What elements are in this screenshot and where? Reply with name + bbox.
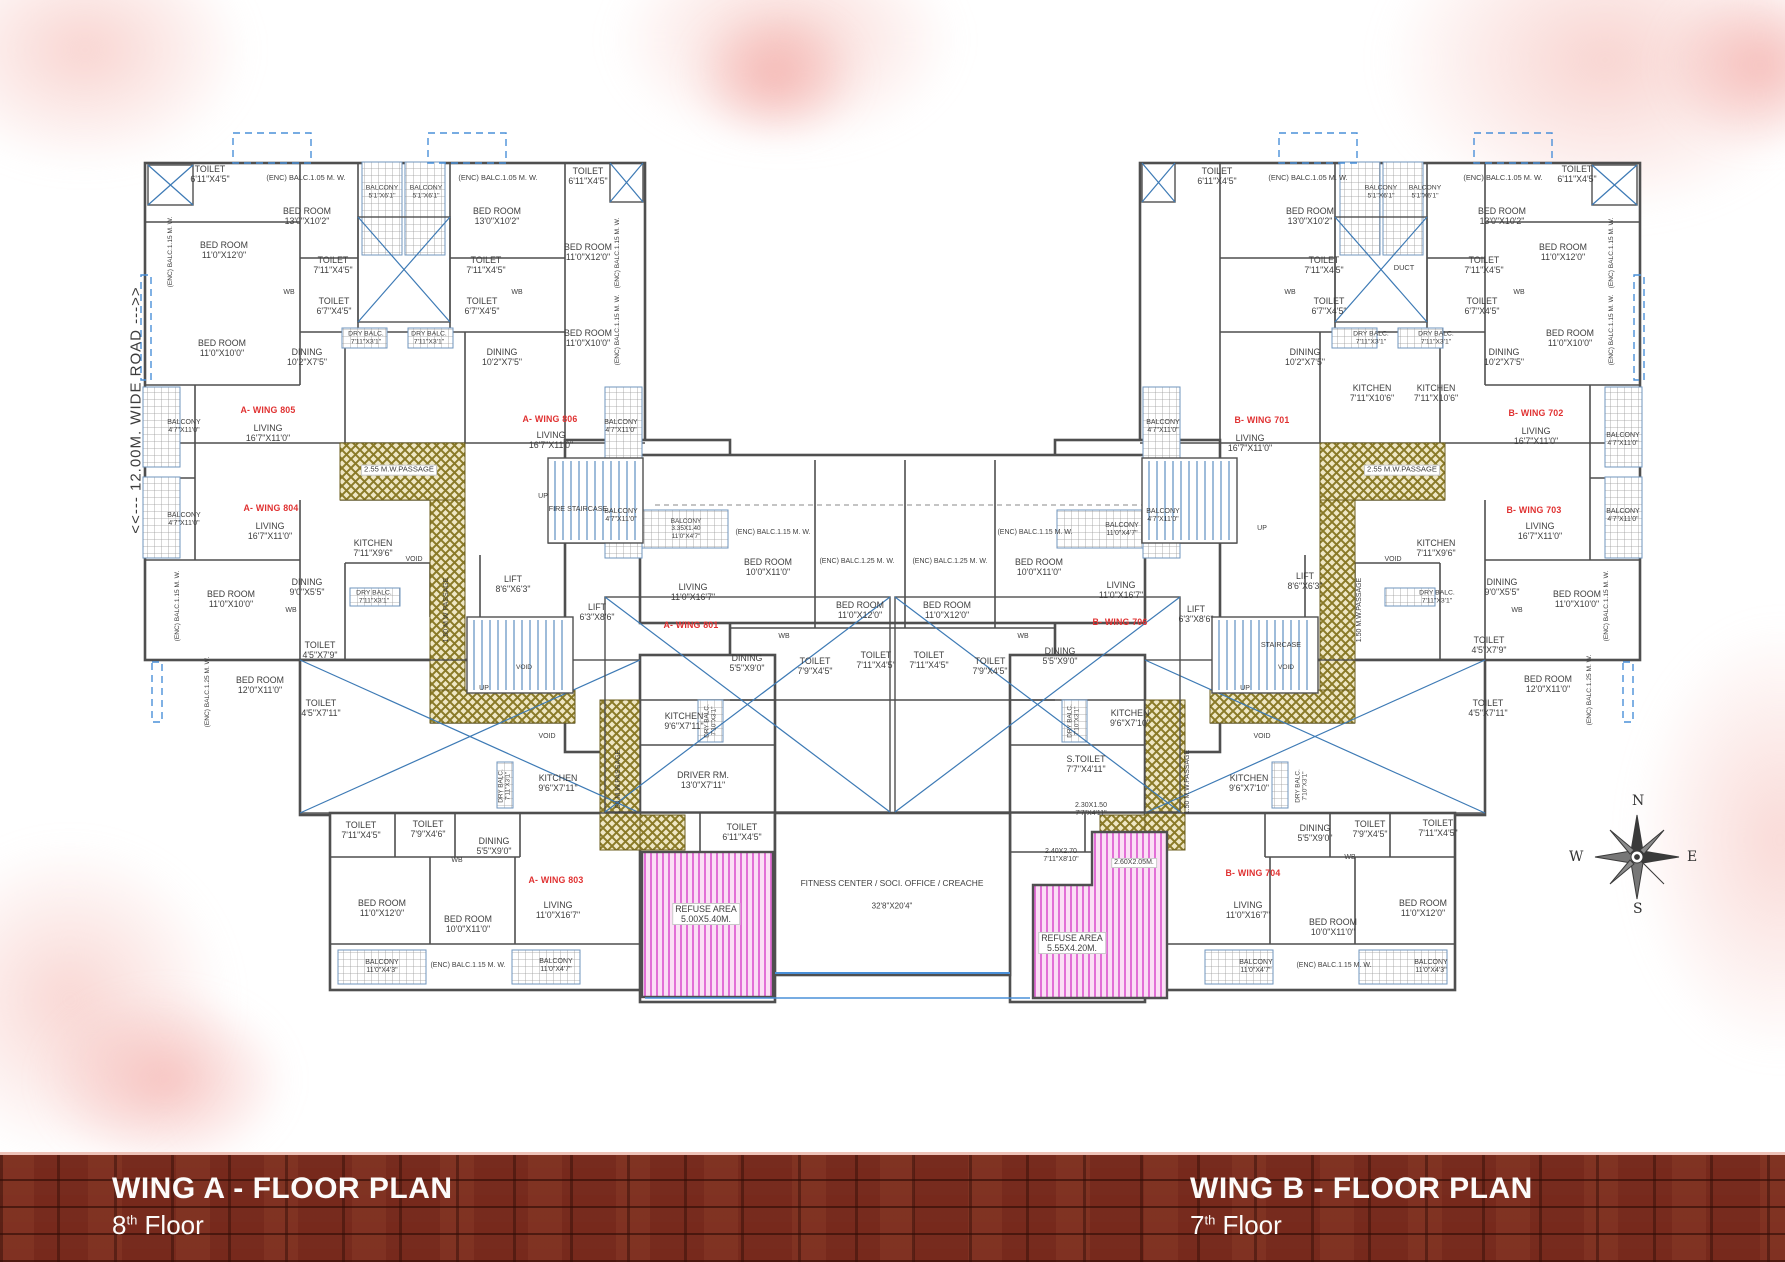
room-label: DINING 10'2"X7'5" (287, 347, 327, 367)
room-label: DRY BALC. 7'11"X3'1" (1353, 330, 1389, 345)
room-label: DRY BALC. 7'10"X3'1" (1295, 769, 1310, 803)
room-label: DRY BALC. 7'11"X3'1" (498, 769, 513, 803)
compass-west-label: W (1569, 849, 1583, 865)
room-label: TOILET 4'5"X7'9" (1471, 635, 1506, 655)
room-label: KITCHEN 7'11"X10'6" (1350, 383, 1394, 403)
room-label: BED ROOM 13'0"X10'2" (473, 206, 521, 226)
room-label: TOILET 6'11"X4'5" (722, 822, 761, 842)
room-label: TOILET 4'5"X7'9" (302, 640, 337, 660)
room-label: BED ROOM 11'0"X10'0" (198, 338, 246, 358)
compass-rose: N S W E (1577, 797, 1697, 917)
room-label: (ENC) BALC.1.25 M. W. (819, 558, 894, 566)
room-label: LIVING 16'7"X11'0" (1514, 426, 1558, 446)
footer-band: WING A - FLOOR PLAN 8th Floor WING B - F… (0, 1152, 1785, 1262)
room-label: (ENC) BALC.1.15 M. W. (1296, 962, 1371, 970)
room-label: (ENC) BALC.1.25 M. W. (204, 657, 212, 728)
room-label: LIVING 16'7"X11'0" (529, 430, 573, 450)
compass-north-label: N (1632, 793, 1644, 809)
room-label: 1.50 M.W PASSAGE (443, 578, 451, 643)
wing-a-floor-suffix: th (126, 1212, 137, 1227)
room-label: BALCONY 11'0"X4'3" (365, 959, 398, 975)
room-label: BALCONY 4'7"X11'0" (1606, 432, 1639, 448)
wing-a-floor-number: 8 (112, 1210, 126, 1240)
unit-label: A- WING 806 (523, 414, 578, 424)
room-label: BED ROOM 11'0"X10'0" (1546, 328, 1594, 348)
room-label: TOILET 7'9"X4'5" (797, 656, 832, 676)
room-label: TOILET 6'11"X4'5" (1197, 166, 1236, 186)
room-label: REFUSE AREA 5.00X5.40M. (672, 903, 740, 925)
room-label: 1.50 M.W.PASSAGE (615, 750, 623, 814)
room-label: BALCONY 4'7"X11'0" (167, 419, 200, 435)
room-label: DINING 5'5"X9'0" (1297, 823, 1332, 843)
room-label: BALCONY 11'0"X4'3" (1414, 959, 1447, 975)
compass-south-label: S (1633, 901, 1643, 917)
room-label: 1.50 M.W.PASSAGE (1184, 750, 1192, 814)
room-label: LIFT 6'3"X8'6" (579, 602, 614, 622)
room-label: DRY BALC. 7'11"X3'1" (411, 330, 447, 345)
room-label: (ENC) BALC.1.15 M. W. (167, 217, 175, 288)
wing-a-title: WING A - FLOOR PLAN (112, 1172, 453, 1206)
wing-b-title-block: WING B - FLOOR PLAN 7th Floor (1190, 1172, 1533, 1241)
room-label: UP (479, 685, 489, 693)
room-label: BED ROOM 11'0"X12'0" (836, 600, 884, 620)
room-label: WB (1284, 289, 1295, 297)
room-label: LIVING 16'7"X11'0" (246, 423, 290, 443)
room-label: 2.55 M.W.PASSAGE (1364, 465, 1440, 476)
room-label: BALCONY 11'0"X4'7" (539, 958, 572, 974)
room-label: TOILET 6'7"X4'5" (464, 296, 499, 316)
room-label: DRIVER RM. 13'0"X7'11" (677, 770, 729, 790)
room-label: TOILET 6'7"X4'5" (1464, 296, 1499, 316)
room-label: TOILET 7'11"X4'5" (341, 820, 380, 840)
room-label: (ENC) BALC.1.15 M. W. (735, 529, 810, 537)
room-label: BALCONY 4'7"X11'0" (1146, 508, 1179, 524)
room-label: TOILET 7'11"X4'5" (909, 650, 948, 670)
room-label: TOILET 4'5"X7'11" (301, 698, 340, 718)
room-label: BED ROOM 11'0"X12'0" (1539, 242, 1587, 262)
room-label: BALCONY 3.35X1.40 11'0"X4'7" (671, 518, 702, 540)
room-label: (ENC) BALC.1.15 M. W. (1608, 218, 1616, 289)
room-label: BED ROOM 13'0"X10'2" (1478, 206, 1526, 226)
room-label: LIFT 8'6"X6'3" (495, 574, 530, 594)
room-label: BALCONY 4'7"X11'0" (1606, 508, 1639, 524)
room-label: TOILET 7'11"X4'5" (1464, 255, 1503, 275)
room-label: KITCHEN 9'6"X7'11" (664, 711, 703, 731)
room-label: DINING 9'0"X5'5" (289, 577, 324, 597)
room-label: BALCONY 5'1"X6'1" (1409, 184, 1441, 199)
room-label: 2.40X2.70 7'11"X8'10" (1043, 848, 1078, 864)
room-label: (ENC) BALC.1.25 M. W. (912, 558, 987, 566)
room-label: (ENC) BALC.1.15 M. W. (1603, 571, 1611, 642)
room-label: LIVING 11'0"X16'7" (671, 582, 715, 602)
room-label: KITCHEN 9'6"X7'10" (1229, 773, 1269, 793)
room-label: WB (511, 289, 522, 297)
room-label: (ENC) BALC.1.25 M. W. (1586, 655, 1594, 726)
room-label: BED ROOM 12'0"X11'0" (236, 675, 284, 695)
room-label: LIVING 11'0"X16'7" (536, 900, 580, 920)
room-label: TOILET 7'9"X4'5" (972, 656, 1007, 676)
room-label: VOID (405, 556, 422, 564)
wing-a-floor-word: Floor (145, 1210, 204, 1240)
floor-plan-svg (0, 0, 1785, 1262)
room-label: BALCONY 4'7"X11'0" (604, 508, 637, 524)
room-label: TOILET 7'11"X4'5" (1418, 818, 1457, 838)
room-label: BALCONY 4'7"X11'0" (167, 512, 200, 528)
room-label: VOID (516, 664, 532, 672)
room-label: TOILET 4'5"X7'11" (1468, 698, 1507, 718)
wing-b-floor-word: Floor (1223, 1210, 1282, 1240)
room-label: DINING 5'5"X9'0" (1042, 646, 1077, 666)
wing-b-floor-suffix: th (1204, 1212, 1215, 1227)
room-label: VOID (1278, 664, 1294, 672)
room-label: TOILET 6'11"X4'5" (190, 164, 229, 184)
compass-star-icon (1577, 797, 1697, 917)
room-label: DINING 10'2"X7'5" (482, 347, 522, 367)
room-label: LIVING 16'7"X11'0" (1228, 433, 1272, 453)
room-label: BED ROOM 10'0"X11'0" (1015, 557, 1063, 577)
room-label: 2.55 M.W.PASSAGE (361, 465, 437, 476)
room-label: 32'8"X20'4" (872, 901, 913, 910)
room-label: DINING 10'2"X7'5" (1484, 347, 1524, 367)
wing-b-floor: 7th Floor (1190, 1210, 1533, 1241)
room-label: BED ROOM 13'0"X10'2" (283, 206, 331, 226)
room-label: DRY BALC. 7'11"X3'1" (348, 330, 384, 345)
room-label: TOILET 7'9"X4'6" (410, 819, 445, 839)
room-label: BED ROOM 13'0"X10'2" (1286, 206, 1334, 226)
room-label: KITCHEN 9'6"X7'11" (538, 773, 577, 793)
room-label: WB (1511, 607, 1522, 615)
room-label: FIRE STAIRCASE (549, 505, 608, 513)
unit-label: B- WING 701 (1235, 415, 1290, 425)
room-label: LIVING 11'0"X16'7" (1099, 580, 1143, 600)
unit-label: A- WING 801 (664, 620, 719, 630)
room-label: BALCONY 4'7"X11'0" (604, 419, 637, 435)
unit-label: A- WING 805 (241, 405, 296, 415)
room-label: (ENC) BALC.1.05 M. W. (458, 174, 537, 182)
room-label: BED ROOM 11'0"X12'0" (923, 600, 971, 620)
room-label: KITCHEN 9'6"X7'10" (1110, 708, 1150, 728)
room-label: VOID (1253, 733, 1270, 741)
room-label: LIFT 8'6"X6'3" (1287, 571, 1322, 591)
room-label: BED ROOM 11'0"X12'0" (200, 240, 248, 260)
unit-label: B- WING 704 (1226, 868, 1281, 878)
room-label: S.TOILET 7'7"X4'11" (1066, 754, 1105, 774)
room-label: WB (451, 857, 462, 865)
road-label: <<--- 12.00M. WIDE ROAD --->> (128, 286, 145, 533)
room-label: DRY BALC. 7'10"X3'1" (704, 704, 719, 738)
room-label: TOILET 6'7"X4'5" (316, 296, 351, 316)
room-label: WB (283, 289, 294, 297)
room-label: UP (538, 493, 548, 501)
room-label: DINING 10'2"X7'5" (1285, 347, 1325, 367)
room-label: TOILET 7'11"X4'5" (1304, 255, 1343, 275)
room-label: (ENC) BALC.1.15 M. W. (174, 571, 182, 642)
room-label: (ENC) BALC.1.15 M. W. (614, 218, 622, 289)
room-label: BED ROOM 11'0"X10'0" (1553, 589, 1601, 609)
room-label: TOILET 7'9"X4'5" (1352, 819, 1387, 839)
room-label: LIVING 16'7"X11'0" (1518, 521, 1562, 541)
room-label: BED ROOM 11'0"X12'0" (564, 242, 612, 262)
room-label: (ENC) BALC.1.15 M. W. (997, 529, 1072, 537)
room-label: DINING 5'5"X9'0" (729, 653, 764, 673)
room-label: TOILET 6'11"X4'5" (568, 166, 607, 186)
room-label: BED ROOM 10'0"X11'0" (1309, 917, 1357, 937)
room-label: BED ROOM 11'0"X10'0" (564, 328, 612, 348)
wing-b-title: WING B - FLOOR PLAN (1190, 1172, 1533, 1206)
room-label: (ENC) BALC.1.05 M. W. (1463, 174, 1542, 182)
compass-east-label: E (1687, 849, 1697, 865)
room-label: UP (1240, 685, 1250, 693)
room-label: FITNESS CENTER / SOCI. OFFICE / CREACHE (801, 879, 984, 889)
room-label: BED ROOM 11'0"X12'0" (1399, 898, 1447, 918)
room-label: TOILET 6'11"X4'5" (1557, 164, 1596, 184)
room-label: 2.60X2.05M. (1111, 858, 1157, 868)
room-label: BED ROOM 10'0"X11'0" (444, 914, 492, 934)
room-label: (ENC) BALC.1.15 M. W. (1608, 295, 1616, 366)
room-label: WB (1344, 854, 1355, 862)
wing-b-floor-number: 7 (1190, 1210, 1204, 1240)
room-label: DINING 5'5"X9'0" (476, 836, 511, 856)
unit-label: A- WING 803 (529, 875, 584, 885)
room-label: TOILET 6'7"X4'5" (1311, 296, 1346, 316)
room-label: VOID (1384, 556, 1401, 564)
room-label: DUCT (1394, 264, 1415, 272)
room-label: BED ROOM 11'0"X10'0" (207, 589, 255, 609)
room-label: KITCHEN 7'11"X9'6" (353, 538, 392, 558)
room-label: BALCONY 11'0"X4'7" (1239, 959, 1272, 975)
room-label: WB (1017, 633, 1028, 641)
room-label: BALCONY 5'1"X6'1" (410, 184, 442, 199)
room-label: UP (1257, 525, 1267, 533)
room-label: BED ROOM 10'0"X11'0" (744, 557, 792, 577)
room-label: (ENC) BALC.1.05 M. W. (1268, 174, 1347, 182)
room-label: 1.50 M.W.PASSAGE (1356, 578, 1364, 642)
room-label: STAIRCASE (1261, 641, 1301, 649)
room-label: LIVING 16'7"X11'0" (248, 521, 292, 541)
floor-plan-page: TOILET 6'11"X4'5"(ENC) BALC.1.15 M. W.BE… (0, 0, 1785, 1262)
room-label: REFUSE AREA 5.55X4.20M. (1038, 932, 1106, 954)
room-label: BALCONY 4'7"X11'0" (1146, 419, 1179, 435)
unit-label: B- WING 706 (1093, 617, 1148, 627)
room-label: BED ROOM 12'0"X11'0" (1524, 674, 1572, 694)
room-label: DRY BALC. 7'10"X3'1" (1067, 704, 1082, 738)
room-label: (ENC) BALC.1.15 M. W. (430, 962, 505, 970)
room-label: KITCHEN 7'11"X10'6" (1414, 383, 1458, 403)
wing-a-floor: 8th Floor (112, 1210, 453, 1241)
room-label: BALCONY 5'1"X6'1" (1365, 184, 1397, 199)
room-label: LIVING 11'0"X16'7" (1226, 900, 1270, 920)
room-label: LIFT 6'3"X8'6" (1178, 604, 1213, 624)
room-label: WB (1513, 289, 1524, 297)
room-label: WB (778, 633, 789, 641)
room-label: DINING 9'0"X5'5" (1484, 577, 1519, 597)
room-label: DRY BALC. 7'11"X3'1" (1419, 589, 1455, 604)
room-label: DRY BALC. 7'11"X3'1" (1418, 330, 1454, 345)
room-label: TOILET 7'11"X4'5" (313, 255, 352, 275)
room-label: VOID (538, 733, 555, 741)
room-label: (ENC) BALC.1.05 M. W. (266, 174, 345, 182)
room-label: BED ROOM 11'0"X12'0" (358, 898, 406, 918)
room-label: TOILET 7'11"X4'5" (466, 255, 505, 275)
room-label: DRY BALC. 7'11"X3'1" (356, 589, 392, 604)
unit-label: A- WING 804 (244, 503, 299, 513)
unit-label: B- WING 703 (1507, 505, 1562, 515)
wing-a-title-block: WING A - FLOOR PLAN 8th Floor (112, 1172, 453, 1241)
room-label: WB (285, 607, 296, 615)
room-label: KITCHEN 7'11"X9'6" (1416, 538, 1455, 558)
room-label: BALCONY 5'1"X6'1" (366, 184, 398, 199)
unit-label: B- WING 702 (1509, 408, 1564, 418)
room-label: BALCONY 11'0"X4'7" (1105, 522, 1138, 538)
room-label: 2.30X1.50 7'7"X4'11" (1075, 802, 1107, 818)
room-label: TOILET 7'11"X4'5" (856, 650, 895, 670)
room-label: (ENC) BALC.1.15 M. W. (614, 295, 622, 366)
